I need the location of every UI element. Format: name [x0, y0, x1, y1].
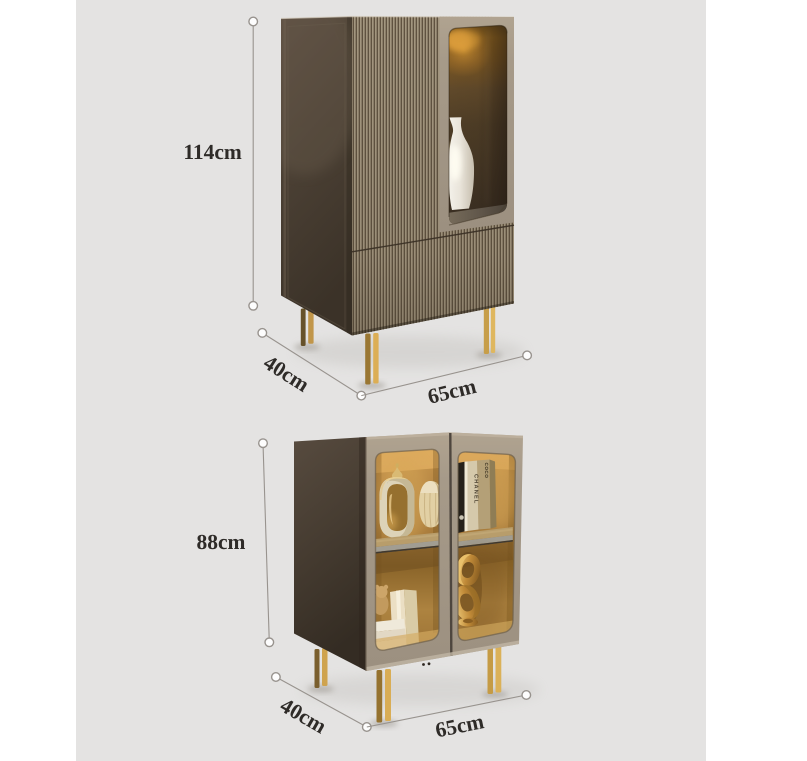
svg-text:88cm: 88cm — [197, 530, 246, 554]
svg-text:CHANEL: CHANEL — [473, 474, 479, 505]
svg-text:114cm: 114cm — [183, 140, 242, 164]
svg-text:COCO: COCO — [484, 463, 489, 479]
